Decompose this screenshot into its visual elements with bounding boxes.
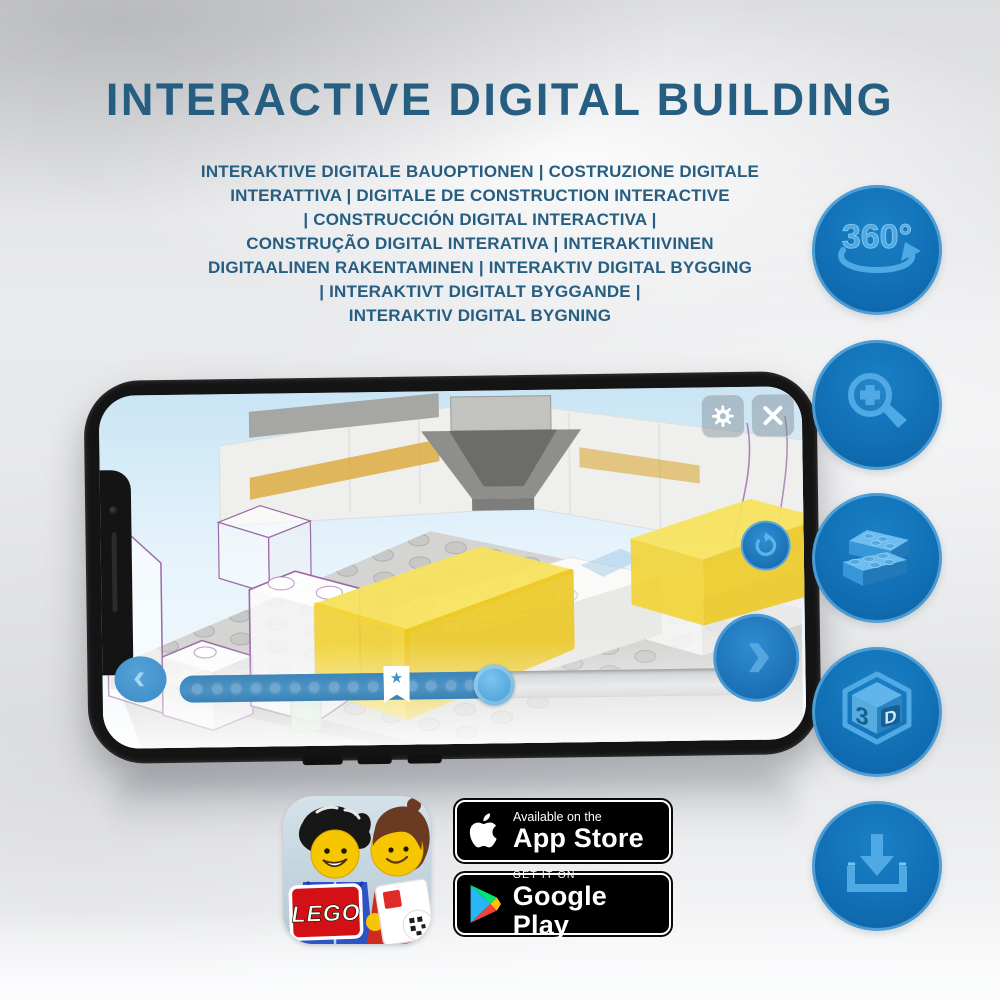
google-play-icon: [469, 884, 502, 924]
progress-dot: [229, 681, 244, 696]
google-play-prefix: GET IT ON: [513, 868, 657, 882]
app-store-badge[interactable]: Available on the App Store: [455, 800, 671, 862]
brick-stack-icon: [812, 493, 942, 623]
settings-button[interactable]: [701, 394, 746, 439]
progress-dot: [326, 680, 341, 695]
subtitle-line: | CONSTRUCCIÓN DIGITAL INTERACTIVA |: [150, 208, 810, 232]
gear-icon: [710, 403, 736, 429]
plate-stud: [230, 633, 251, 645]
progress-fill: [179, 671, 494, 702]
front-camera: [109, 506, 118, 515]
progress-dot: [268, 680, 283, 695]
google-play-name: Google Play: [513, 882, 657, 940]
lego-app-icon: LEGO: [283, 796, 431, 944]
close-button[interactable]: [751, 393, 796, 438]
close-icon: [761, 403, 785, 427]
subtitle-line: INTERAKTIV DIGITAL BYGNING: [150, 304, 810, 328]
subtitle-line: INTERATTIVA | DIGITALE DE CONSTRUCTION I…: [150, 184, 810, 208]
phone: ★: [83, 371, 821, 764]
app-store-name: App Store: [513, 824, 644, 853]
360-rotation-icon: 360°: [812, 185, 942, 315]
subtitle-line: | INTERAKTIVT DIGITALT BYGGANDE |: [150, 280, 810, 304]
lego-logo-text: LEGO: [291, 899, 361, 927]
progress-dot: [307, 680, 322, 695]
progress-dot: [248, 681, 263, 696]
zoom-in-icon: [812, 340, 942, 470]
360-label: 360°: [842, 218, 912, 256]
phone-volume-button: [358, 755, 392, 764]
cube-3-label: 3: [855, 702, 868, 732]
plate-stud: [445, 542, 466, 554]
multilingual-subtitle: INTERAKTIVE DIGITALE BAUOPTIONEN | COSTR…: [150, 160, 810, 328]
progress-dot: [365, 679, 380, 694]
subtitle-line: DIGITAALINEN RAKENTAMINEN | INTERAKTIV D…: [150, 256, 810, 280]
page-title: INTERACTIVE DIGITAL BUILDING: [0, 74, 1000, 126]
progress-dot: [443, 678, 458, 693]
subtitle-line: CONSTRUÇÃO DIGITAL INTERATIVA | INTERAKT…: [150, 232, 810, 256]
app-screen: ★: [99, 386, 807, 749]
chevron-right-icon: [739, 639, 774, 677]
progress-dot: [190, 681, 205, 696]
subtitle-line: INTERAKTIVE DIGITALE BAUOPTIONEN | COSTR…: [150, 160, 810, 184]
earpiece-speaker: [111, 532, 117, 612]
3d-view-icon: 3 D: [812, 647, 942, 777]
phone-power-button: [408, 754, 442, 763]
app-store-prefix: Available on the: [513, 810, 644, 824]
download-icon: [812, 801, 942, 931]
progress-dot: [209, 681, 224, 696]
progress-dot: [287, 680, 302, 695]
google-play-badge[interactable]: GET IT ON Google Play: [455, 873, 671, 935]
chevron-left-icon: [131, 669, 149, 689]
rotate-arrow-icon: [751, 530, 781, 560]
phone-volume-button: [303, 756, 343, 766]
progress-dot: [346, 679, 361, 694]
cube-d-label: D: [884, 705, 896, 728]
apple-icon: [469, 811, 502, 851]
progress-dot: [424, 678, 439, 693]
phone-notch: [99, 469, 134, 674]
